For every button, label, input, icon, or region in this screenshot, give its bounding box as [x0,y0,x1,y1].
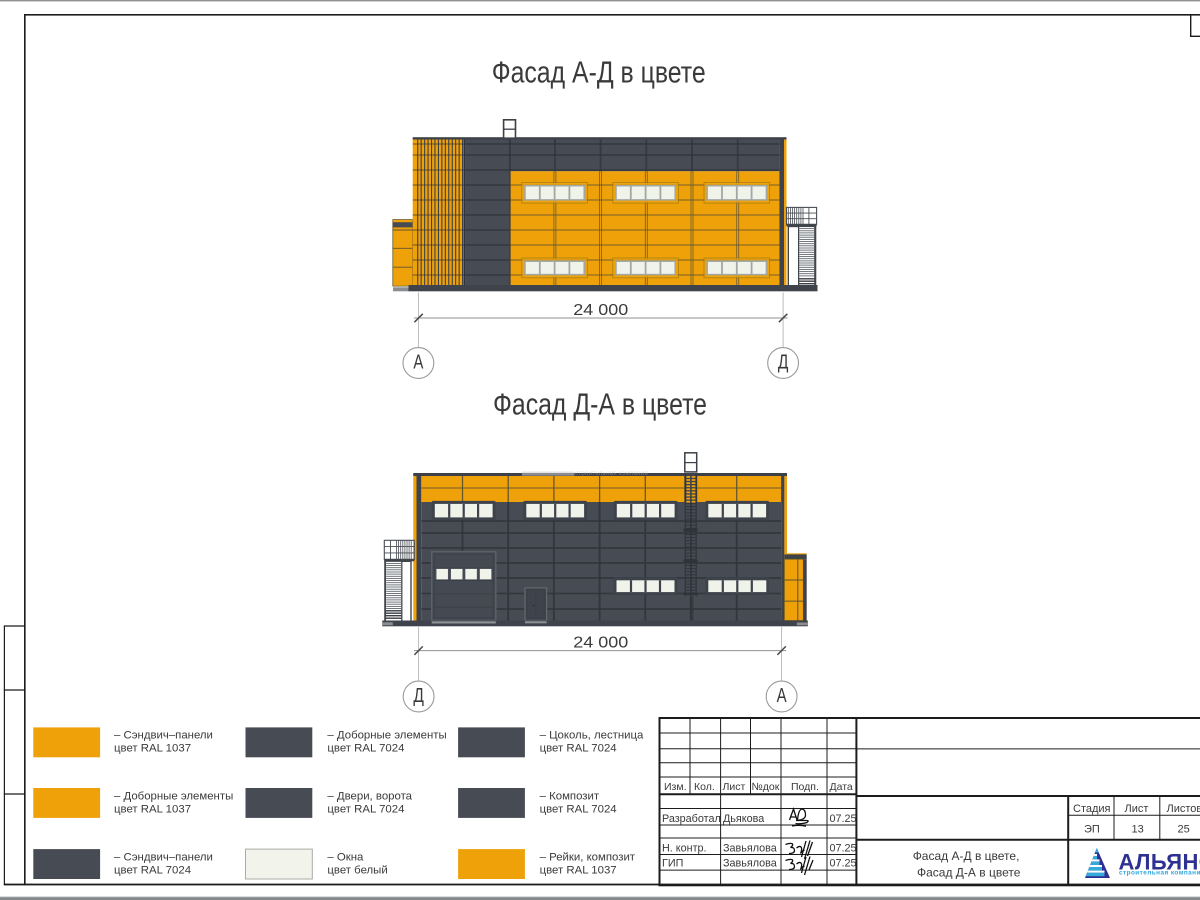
svg-text:Листов: Листов [1167,803,1200,815]
svg-text:Дата: Дата [830,781,853,793]
svg-text:24 000: 24 000 [573,302,628,319]
svg-text:А: А [777,684,787,707]
svg-text:Н. контр.: Н. контр. [662,842,707,854]
svg-text:Разработал: Разработал [662,813,721,825]
svg-text:Фасад А-Д в цвете,: Фасад А-Д в цвете, [913,849,1020,863]
svg-text:цвет RAL 1037: цвет RAL 1037 [540,864,617,876]
svg-text:Стадия: Стадия [1073,803,1111,815]
svg-text:07.25: 07.25 [830,813,857,825]
svg-text:Завьялова: Завьялова [723,858,777,870]
svg-text:– Доборные элементы: – Доборные элементы [327,730,446,742]
svg-text:25: 25 [1178,824,1190,836]
svg-text:цвет RAL 1037: цвет RAL 1037 [114,803,191,815]
svg-text:Фасад Д-А в цвете: Фасад Д-А в цвете [493,386,707,421]
svg-text:– Композит: – Композит [540,790,600,802]
svg-text:цвет RAL 7024: цвет RAL 7024 [327,743,404,755]
svg-text:07.25: 07.25 [830,858,857,870]
svg-text:Фасад А-Д в цвете: Фасад А-Д в цвете [492,54,706,89]
svg-text:ЭП: ЭП [1084,824,1100,836]
svg-text:цвет RAL 7024: цвет RAL 7024 [540,743,617,755]
svg-text:13: 13 [1132,824,1144,836]
svg-text:Лист: Лист [723,781,746,793]
svg-text:– Сэндвич–панели: – Сэндвич–панели [114,851,213,863]
svg-text:24 000: 24 000 [573,635,628,652]
svg-text:Завьялова: Завьялова [723,842,777,854]
svg-text:– Двери, ворота: – Двери, ворота [327,790,412,802]
svg-text:– Цоколь, лестница: – Цоколь, лестница [540,730,644,742]
svg-text:Д: Д [778,351,789,374]
svg-text:– Окна: – Окна [327,851,364,863]
svg-text:Подп.: Подп. [791,781,819,793]
svg-text:цвет белый: цвет белый [327,864,387,876]
svg-text:цвет RAL 7024: цвет RAL 7024 [540,803,617,815]
svg-text:ГИП: ГИП [662,858,683,870]
svg-text:– Сэндвич–панели: – Сэндвич–панели [114,730,213,742]
svg-text:Лист: Лист [1125,803,1149,815]
svg-text:07.25: 07.25 [830,842,857,854]
svg-text:Изм.: Изм. [664,781,687,793]
svg-text:№док: №док [752,781,780,793]
svg-text:Фасад Д-А в цвете: Фасад Д-А в цвете [917,865,1021,879]
svg-text:цвет RAL 7024: цвет RAL 7024 [114,864,191,876]
svg-text:Д: Д [413,684,424,707]
svg-text:Кол.: Кол. [694,781,715,793]
svg-text:цвет RAL 1037: цвет RAL 1037 [114,743,191,755]
svg-text:– Рейки, композит: – Рейки, композит [540,851,636,863]
svg-text:А: А [413,351,423,374]
svg-text:цвет RAL 7024: цвет RAL 7024 [327,803,404,815]
svg-text:строительная компания: строительная компания [1119,870,1200,877]
svg-text:строительная компания: строительная компания [575,470,648,477]
svg-text:– Доборные элементы: – Доборные элементы [114,790,233,802]
svg-text:Дьякова: Дьякова [723,813,764,825]
